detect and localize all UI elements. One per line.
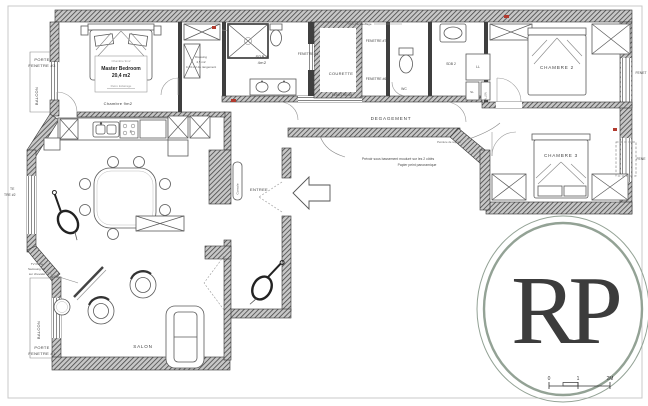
label-fenetre2-frag2: TRE #2 bbox=[4, 193, 16, 197]
reprise-leader bbox=[466, 123, 500, 140]
label-tv-3: sur chevalet bbox=[29, 272, 45, 276]
label-sl: SL bbox=[470, 90, 474, 94]
label-reprise: Peinture de reprise bbox=[437, 140, 461, 144]
label-sdb1-2: 4m2 bbox=[258, 60, 267, 65]
wardrobe-ch2-right bbox=[592, 24, 630, 54]
label-master-bedroom: Master Bedroom bbox=[101, 66, 141, 72]
label-tv-2: Samsung 55" bbox=[28, 267, 46, 271]
label-fenetre6: FENETRE #6 bbox=[366, 77, 387, 81]
label-note-2: Papier peint panoramique bbox=[398, 163, 437, 167]
vanity-sdb1 bbox=[250, 79, 296, 95]
label-fenet-mid: FENE bbox=[636, 157, 646, 161]
window-right-top bbox=[621, 58, 631, 102]
label-entree: ENTREE bbox=[250, 187, 268, 192]
fenetre-4-window bbox=[308, 44, 314, 70]
label-dressing-2: 4,5 m2 bbox=[196, 60, 206, 64]
scale-zero: 0 bbox=[548, 376, 551, 382]
wardrobe-ch3-right bbox=[592, 174, 628, 200]
label-degagement: DEGAGEMENT bbox=[371, 116, 412, 121]
label-chambre9-note: Chambre 9m2 bbox=[111, 59, 130, 63]
label-sdb2: SDB 2 bbox=[446, 62, 456, 66]
label-retro-eclairage: Retro Eclairage bbox=[111, 84, 132, 88]
scale-one: 1 bbox=[577, 376, 580, 382]
label-chambre9: Chambre 9m2 bbox=[104, 101, 133, 106]
porte-fenetre-2-window bbox=[27, 176, 36, 234]
armchair-1 bbox=[88, 297, 114, 324]
label-puit: Puit d'échauffage bbox=[348, 22, 371, 26]
label-balcon-bottom: BALCON bbox=[36, 321, 41, 339]
label-fenetre2-frag1: TE bbox=[10, 187, 15, 191]
armchair-2 bbox=[130, 271, 156, 298]
label-ballon: BALLON bbox=[485, 92, 488, 102]
tv-easel bbox=[74, 267, 106, 300]
label-fenet-top: FENET bbox=[635, 71, 646, 75]
label-dressing-1: Dressing bbox=[195, 55, 207, 59]
bed-chambre2 bbox=[528, 28, 586, 95]
label-master-area: 20,4 m2 bbox=[112, 73, 131, 79]
scale-two: 2M bbox=[607, 376, 614, 382]
label-balcon-top: BALCON bbox=[34, 87, 39, 105]
label-note-1: Prévoir sous bassement mouluré sur les 2… bbox=[362, 157, 435, 161]
floor-plan: PORTE FENETRE #3 BALCON Chambre 9m2 Mast… bbox=[0, 0, 648, 406]
label-ll: LL bbox=[476, 65, 480, 69]
sideboard bbox=[136, 216, 184, 231]
bed-chambre3 bbox=[532, 134, 590, 198]
label-porte-fenetre3-line2: FENETRE #3 bbox=[28, 63, 56, 68]
note-leader bbox=[320, 136, 345, 157]
dressing-wardrobes bbox=[184, 24, 220, 78]
basin-sdb2 bbox=[440, 24, 466, 42]
label-stove-f: F bbox=[130, 129, 133, 134]
wardrobe-ch3-left bbox=[492, 174, 526, 200]
rp-logo-initials: RP bbox=[511, 257, 619, 365]
wardrobe-ch2-left bbox=[490, 24, 532, 40]
label-wc: WC bbox=[401, 87, 407, 91]
toilet-wc bbox=[399, 48, 413, 73]
label-fenetre4: FENETRE #4 bbox=[298, 52, 319, 56]
label-courette: COURETTE bbox=[329, 71, 353, 76]
shower bbox=[228, 24, 268, 58]
sofa bbox=[166, 306, 204, 368]
label-fenetre7: FENETRE #7 bbox=[366, 39, 387, 43]
label-sdb1-1: SDB 1 bbox=[255, 54, 269, 59]
label-console: Console bbox=[236, 183, 240, 194]
label-porte-fenetre1-line2: FENETRE #1 bbox=[28, 351, 56, 356]
label-chambre3: CHAMBRE 3 bbox=[544, 153, 578, 158]
label-porte-fenetre3-line1: PORTE bbox=[34, 57, 49, 62]
label-fenetre5: FENETRE #5 bbox=[332, 93, 353, 97]
rp-logo: RP bbox=[477, 216, 648, 402]
kitchen bbox=[44, 116, 210, 156]
label-salon: SALON bbox=[133, 344, 153, 349]
label-chambre2: CHAMBRE 2 bbox=[540, 65, 574, 70]
entry-arrow bbox=[293, 177, 330, 209]
label-tv-1: TV frame bbox=[31, 262, 44, 266]
label-dressing-3: 4,23 m2 de rangement bbox=[186, 65, 216, 69]
toilet-sdb1 bbox=[270, 24, 282, 46]
cello-entry bbox=[245, 254, 286, 310]
label-porte-fenetre1-line1: PORTE bbox=[34, 345, 49, 350]
cello-dining bbox=[41, 189, 87, 244]
